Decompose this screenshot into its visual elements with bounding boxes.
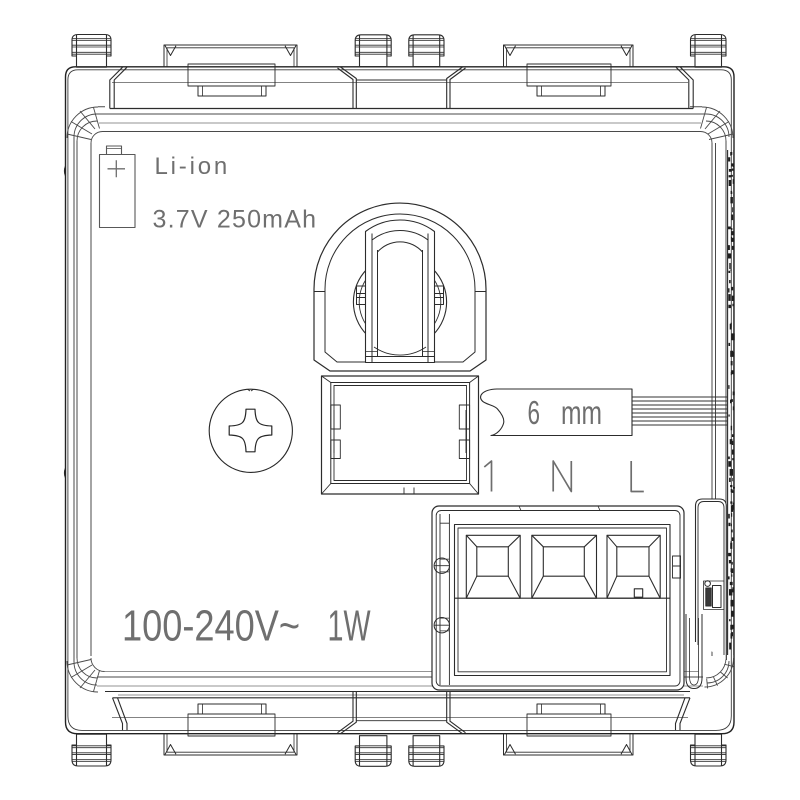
svg-text:mm: mm [561, 394, 602, 431]
svg-text:1W: 1W [328, 602, 371, 650]
svg-text:6: 6 [528, 394, 541, 431]
svg-text:3.7V 250mAh: 3.7V 250mAh [153, 206, 318, 234]
svg-text:100-240V~: 100-240V~ [122, 602, 300, 650]
svg-text:Li-ion: Li-ion [155, 153, 231, 180]
